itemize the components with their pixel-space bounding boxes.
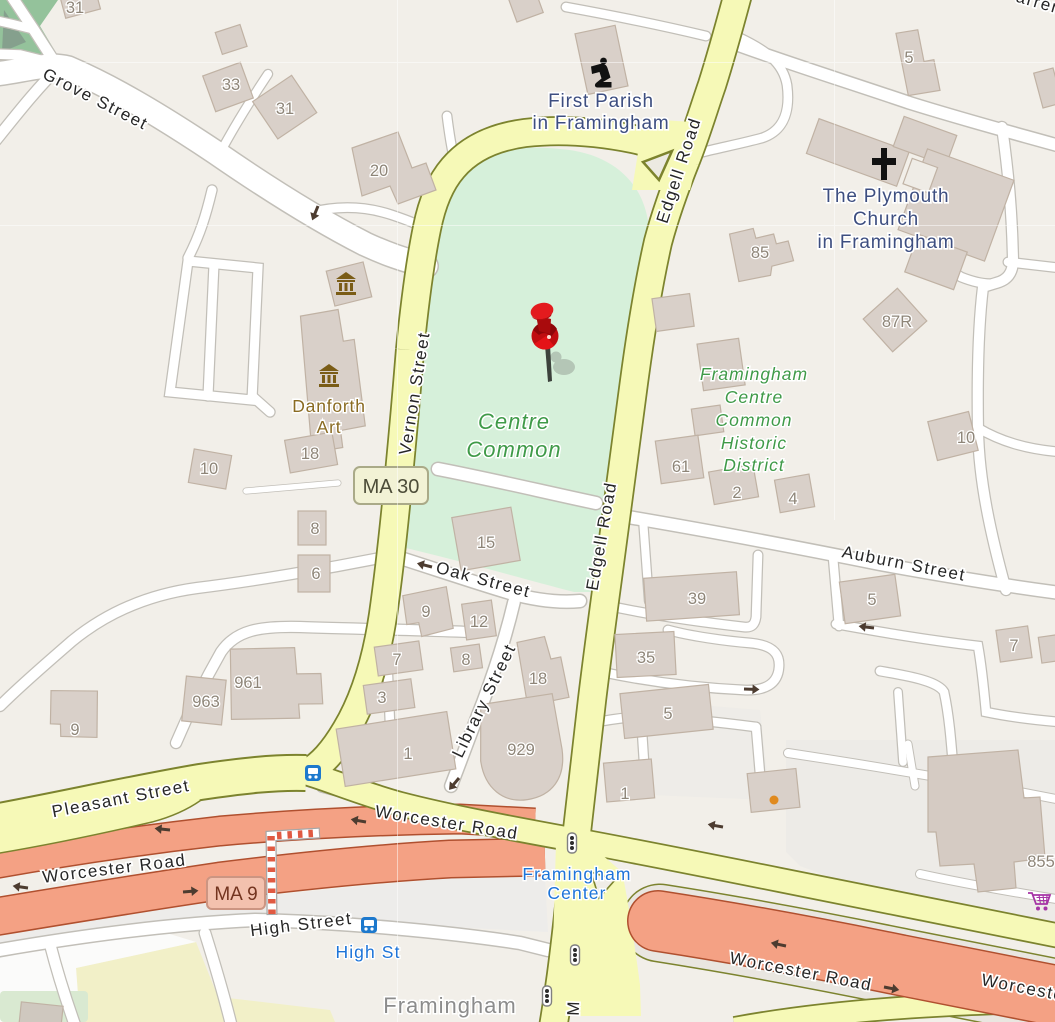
svg-text:15: 15 <box>477 534 495 552</box>
svg-text:1: 1 <box>403 745 412 763</box>
svg-text:M: M <box>564 1000 584 1016</box>
svg-text:First Parish: First Parish <box>548 91 654 112</box>
svg-text:Framingham: Framingham <box>700 364 808 384</box>
svg-text:35: 35 <box>637 649 655 667</box>
svg-text:3: 3 <box>377 689 386 707</box>
svg-text:87R: 87R <box>882 313 912 331</box>
svg-text:61: 61 <box>672 458 690 476</box>
svg-text:8: 8 <box>461 651 470 669</box>
svg-text:District: District <box>723 455 785 475</box>
svg-text:Common: Common <box>466 437 561 462</box>
svg-text:MA 9: MA 9 <box>214 884 257 905</box>
svg-text:5: 5 <box>904 49 913 67</box>
svg-text:8: 8 <box>310 520 319 538</box>
svg-text:Centre: Centre <box>478 409 550 434</box>
svg-text:31: 31 <box>276 100 294 118</box>
svg-text:MA 30: MA 30 <box>363 476 420 498</box>
svg-text:Art: Art <box>317 417 342 437</box>
svg-text:961: 961 <box>234 674 262 692</box>
svg-text:Historic: Historic <box>721 433 787 453</box>
svg-text:929: 929 <box>507 741 535 759</box>
svg-text:in Framingham: in Framingham <box>817 232 954 253</box>
svg-text:855: 855 <box>1027 853 1055 871</box>
svg-text:Church: Church <box>853 209 919 230</box>
svg-text:2: 2 <box>732 484 741 502</box>
svg-text:Danforth: Danforth <box>292 396 366 416</box>
svg-text:Common: Common <box>716 410 793 430</box>
svg-text:Framingham: Framingham <box>383 993 516 1018</box>
svg-text:12: 12 <box>470 613 488 631</box>
svg-text:4: 4 <box>788 490 797 508</box>
svg-text:1: 1 <box>620 785 629 803</box>
svg-text:in Framingham: in Framingham <box>532 113 669 134</box>
svg-text:10: 10 <box>200 460 218 478</box>
svg-text:Centre: Centre <box>725 387 784 407</box>
svg-text:33: 33 <box>222 76 240 94</box>
svg-text:9: 9 <box>421 603 430 621</box>
svg-text:Center: Center <box>547 883 606 903</box>
svg-text:85: 85 <box>751 244 769 262</box>
svg-text:18: 18 <box>529 670 547 688</box>
svg-text:39: 39 <box>688 590 706 608</box>
svg-text:5: 5 <box>867 591 876 609</box>
svg-text:18: 18 <box>301 445 319 463</box>
svg-text:High St: High St <box>335 942 400 962</box>
svg-text:20: 20 <box>370 162 388 180</box>
svg-text:10: 10 <box>957 429 975 447</box>
svg-text:963: 963 <box>192 693 220 711</box>
svg-text:31: 31 <box>66 0 84 17</box>
svg-text:6: 6 <box>311 565 320 583</box>
svg-text:9: 9 <box>70 721 79 739</box>
svg-text:7: 7 <box>1009 637 1018 655</box>
svg-text:5: 5 <box>663 705 672 723</box>
svg-text:Framingham: Framingham <box>522 864 631 884</box>
svg-text:7: 7 <box>392 651 401 669</box>
svg-text:The Plymouth: The Plymouth <box>823 186 950 207</box>
